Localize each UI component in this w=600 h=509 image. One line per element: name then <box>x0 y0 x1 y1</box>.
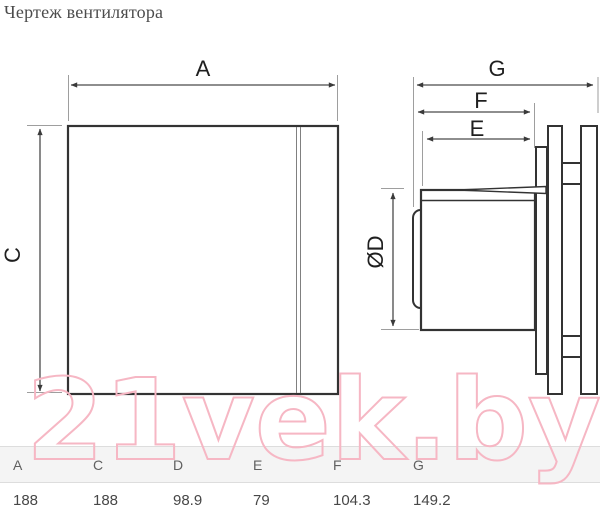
table-value-row: 188 188 98.9 79 104.3 149.2 <box>0 483 600 509</box>
label-A: A <box>196 56 211 81</box>
label-C: C <box>0 247 25 263</box>
table-header-cell: C <box>93 457 173 473</box>
back-plate <box>548 126 562 394</box>
table-header-cell: G <box>413 457 493 473</box>
table-value-cell: 149.2 <box>413 492 493 509</box>
label-E: E <box>470 116 485 141</box>
table-header-cell: A <box>13 457 93 473</box>
table-header-cell: E <box>253 457 333 473</box>
fan-drawing-page: { "title": "Чертеж вентилятора", "waterm… <box>0 0 600 509</box>
rear-panel <box>581 126 597 394</box>
table-value-cell: 98.9 <box>173 492 253 509</box>
table-value-cell: 188 <box>93 492 173 509</box>
label-F: F <box>474 88 487 113</box>
label-G: G <box>488 56 505 81</box>
wall-plate <box>536 147 547 374</box>
table-value-cell: 104.3 <box>333 492 413 509</box>
table-value-cell: 188 <box>13 492 93 509</box>
duct-tube <box>421 190 535 330</box>
label-D: ØD <box>363 236 388 269</box>
dimensions-table: A C D E F G 188 188 98.9 79 104.3 149.2 <box>0 446 600 509</box>
table-header-cell: F <box>333 457 413 473</box>
front-view: A C <box>0 56 338 394</box>
table-header-cell: D <box>173 457 253 473</box>
spacer-bar-bottom <box>561 336 582 357</box>
table-value-cell: 79 <box>253 492 333 509</box>
spacer-bar-top <box>561 163 582 184</box>
fan-technical-drawing: A C G F E ØD <box>0 0 600 446</box>
front-panel-outline <box>68 126 338 394</box>
table-header-row: A C D E F G <box>0 446 600 483</box>
side-view: G F E ØD <box>363 56 598 394</box>
